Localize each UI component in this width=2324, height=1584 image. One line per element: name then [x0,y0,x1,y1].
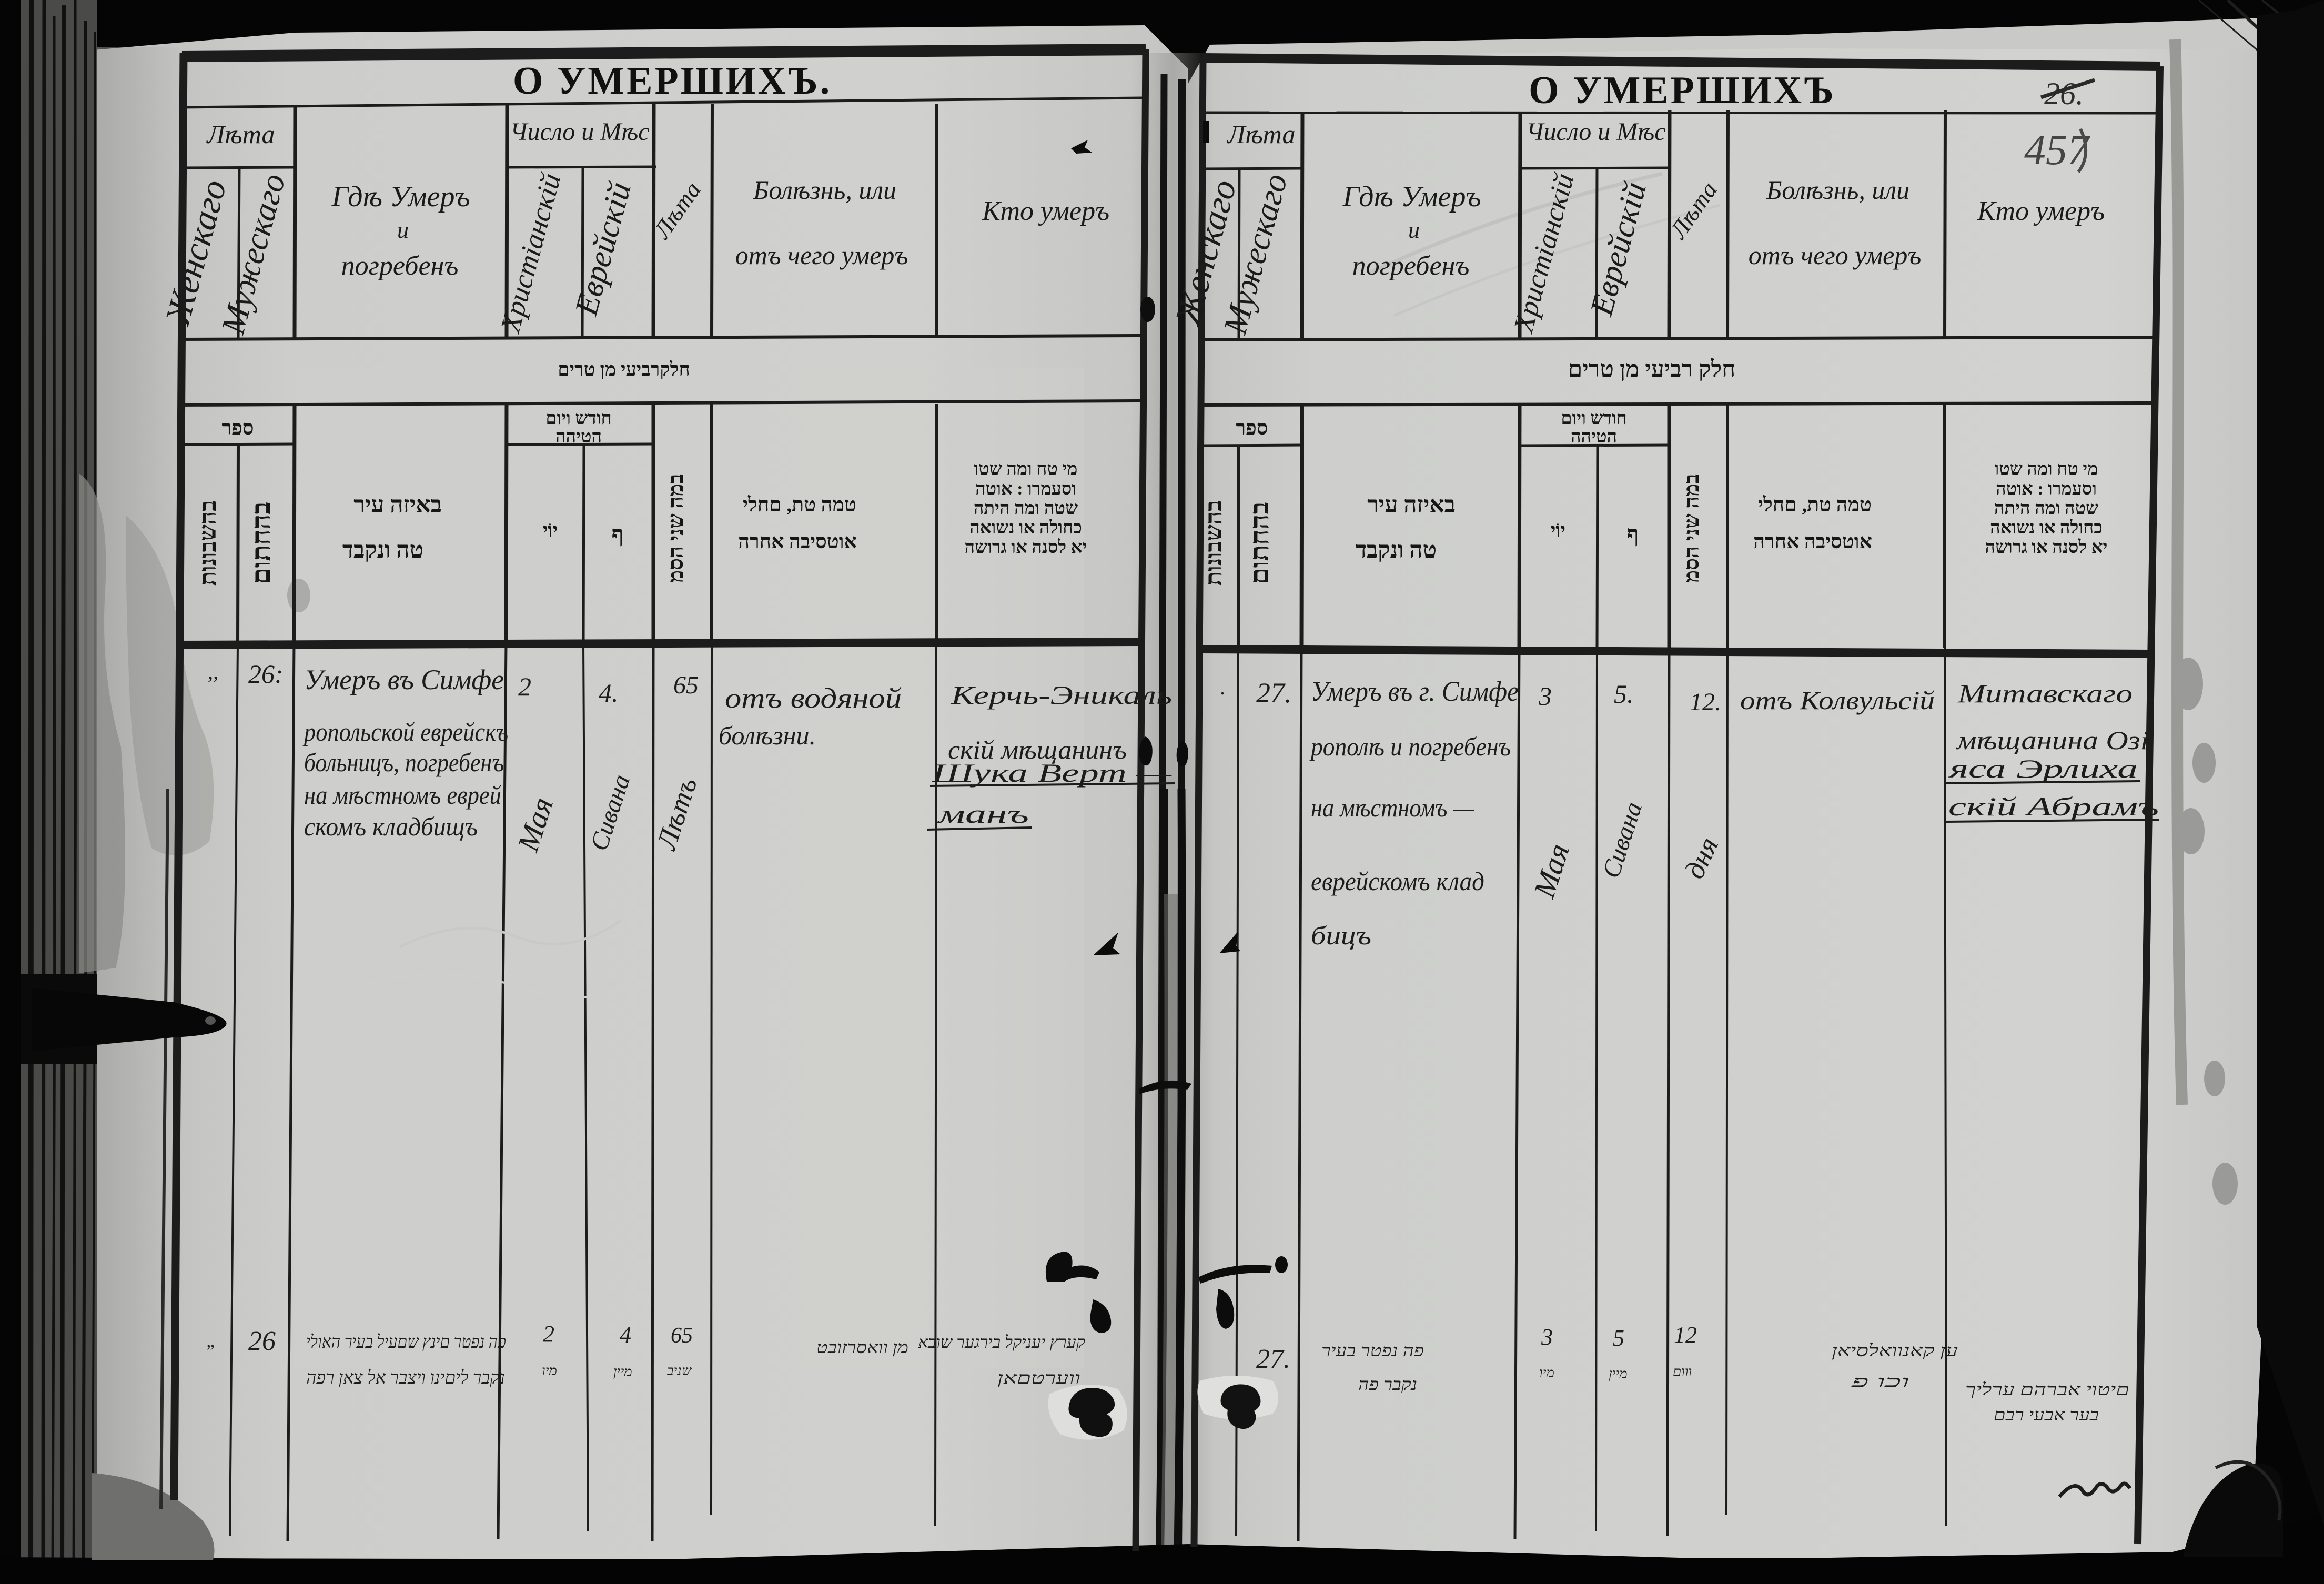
svg-text:еврейскомъ клад: еврейскомъ клад [1311,866,1484,896]
svg-text:חלק רביעי מן טרים: חלק רביעי מן טרים [1568,356,1735,382]
svg-text:Болѣзнь, или: Болѣзнь, или [1766,175,1909,205]
svg-text:3: 3 [1538,681,1552,711]
svg-text:погребенъ: погребенъ [1352,251,1470,281]
svg-text:Лѣта: Лѣта [1227,119,1296,149]
svg-text:бицъ: бицъ [1311,921,1371,950]
svg-text:скомъ кладбищъ: скомъ кладбищъ [304,812,478,841]
svg-text:больницъ, погребенъ: больницъ, погребенъ [304,748,504,777]
svg-text:מי טח ומה שטו: מי טח ומה שטו [1995,459,2098,479]
svg-text:отъ водяной: отъ водяной [725,682,902,714]
svg-text:וכו פ: וכו פ [1851,1373,1909,1390]
svg-text:נקבר פה: נקבר פה [1358,1375,1417,1394]
svg-text:ропольской еврейскъ: ропольской еврейскъ [302,717,508,746]
svg-text:יוֹי: יוֹי [543,520,558,541]
svg-text:12.: 12. [1690,688,1721,716]
svg-text:Митавскаго: Митавскаго [1957,679,2133,708]
svg-text:חלקרביעי מן טרים: חלקרביעי מן טרים [558,359,690,380]
svg-text:ווום: ווום [1673,1364,1692,1379]
svg-text:חודש ויום: חודש ויום [1561,409,1626,428]
svg-text:Гдѣ Умеръ: Гдѣ Умеръ [331,180,470,213]
svg-text:26: 26 [248,1326,276,1356]
svg-text:שניב: שניב [666,1363,692,1378]
svg-text:מיו: מיו [1539,1365,1554,1380]
svg-text:שטה ומה היתה: שטה ומה היתה [974,499,1078,518]
svg-text:3: 3 [1541,1324,1553,1350]
svg-text:ווערטםאן: ווערטםאן [997,1368,1080,1387]
svg-text:מן וואסרזובט: מן וואסרזובט [816,1338,908,1357]
svg-text:טה ונקבד: טה ונקבד [342,537,423,563]
svg-text:ף: ף [612,521,624,547]
svg-text:болѣзни.: болѣзни. [719,721,816,750]
svg-text:27.: 27. [1256,1344,1290,1374]
svg-text:ף: ף [1627,521,1639,547]
svg-text:5: 5 [1613,1325,1624,1351]
svg-text:манъ: манъ [937,799,1029,829]
svg-text:отъ чего умеръ: отъ чего умеръ [735,240,908,270]
svg-text:на мѣстномъ —: на мѣстномъ — [1311,793,1474,822]
svg-text:Число и Мѣс: Число и Мѣс [510,118,649,146]
svg-text:במה שני הסמ: במה שני הסמ [1680,473,1703,582]
svg-text:אוטסיבה אחרה: אוטסיבה אחרה [1753,531,1872,553]
svg-text:отъ чего умеръ: отъ чего умеръ [1749,240,1922,270]
svg-text:טמה טת, םחלי: טמה טת, םחלי [743,494,856,516]
svg-text:„: „ [206,1330,217,1351]
svg-text:וסעמרו : אוטה: וסעמרו : אוטה [1996,479,2097,499]
svg-text:הטיהה: הטיהה [1571,427,1617,447]
svg-text:и: и [1408,217,1420,243]
svg-text:ספר: ספר [222,417,254,439]
svg-text:26:: 26: [248,659,284,689]
svg-text:Керчь-Эникаль: Керчь-Эникаль [951,680,1172,710]
svg-text:и: и [397,217,409,243]
svg-text:נקבר ליםינו ויצבר אל צאן רפה: נקבר ליםינו ויצבר אל צאן רפה [306,1368,505,1388]
svg-text:яса Эрлиха: яса Эрлиха [1948,754,2138,783]
svg-text:отъ Колвульсій: отъ Колвульсій [1740,685,1935,715]
svg-text:2: 2 [543,1321,554,1347]
svg-text:скій Абрамъ: скій Абрамъ [1948,792,2159,821]
svg-text:םיטוי אברהם ערליך: םיטוי אברהם ערליך [1965,1380,2129,1399]
svg-text:ען קאנוואלסיאן: ען קאנוואלסיאן [1832,1341,1958,1360]
svg-text:погребенъ: погребенъ [341,251,459,281]
svg-text:65: 65 [673,671,699,699]
svg-text:קערץ יעניקל בירגער שובא: קערץ יעניקל בירגער שובא [918,1333,1085,1351]
svg-text:בער אבעי רבם: בער אבעי רבם [1994,1405,2099,1424]
svg-text:וסעמרו : אוטה: וסעמרו : אוטה [975,479,1076,499]
svg-text:טמה טת, םחלי: טמה טת, םחלי [1758,494,1872,516]
svg-text:ספר: ספר [1236,417,1268,439]
svg-text:на мѣстномъ еврей: на мѣстномъ еврей [304,780,501,810]
svg-text:מיו: מיו [542,1363,557,1378]
svg-text:מיין: מיין [1609,1366,1628,1381]
svg-text:כחולה או נשואה: כחולה או נשואה [969,518,1082,538]
svg-text:.: . [1220,675,1226,699]
svg-text:Болѣзнь, или: Болѣзнь, или [753,175,896,205]
svg-text:мѣщанина Озі: мѣщанина Озі [1956,725,2149,755]
svg-text:בהשבונות: בהשבונות [195,500,221,586]
svg-text:12: 12 [1674,1322,1697,1348]
svg-text:О УМЕРШИХЪ: О УМЕРШИХЪ [1529,69,1836,112]
svg-text:4: 4 [620,1322,631,1348]
svg-text:рополѣ и погребенъ: рополѣ и погребенъ [1309,732,1511,761]
svg-text:אוטסיבה אחרה: אוטסיבה אחרה [738,531,857,553]
svg-text:Лѣта: Лѣта [206,119,275,149]
svg-text:חודש ויום: חודש ויום [545,409,611,428]
svg-text:הטיהה: הטיהה [555,427,602,447]
svg-text:שטה ומה היתה: שטה ומה היתה [1994,499,2098,518]
svg-text:27.: 27. [1256,677,1292,709]
svg-text:באיזה עיר: באיזה עיר [353,492,442,518]
svg-text:יא לסנה או גרושה: יא לסנה או גרושה [965,538,1087,557]
svg-text:בהשבונות: בהשבונות [1201,500,1227,586]
svg-text:יא לסנה או גרושה: יא לסנה או גרושה [1985,538,2108,557]
svg-text:מיין: מיין [613,1364,632,1379]
svg-text:Число и Мѣс: Число и Мѣс [1526,118,1665,146]
svg-text:2: 2 [518,672,531,701]
svg-text:65: 65 [671,1324,693,1348]
svg-text:Кто умеръ: Кто умеръ [982,196,1109,226]
svg-text:О УМЕРШИХЪ.: О УМЕРШИХЪ. [513,59,832,103]
svg-text:כחולה או נשואה: כחולה או נשואה [1990,518,2103,538]
svg-text:Умеръ въ Симфе: Умеръ въ Симфе [304,664,504,695]
svg-text:5.: 5. [1614,679,1634,709]
svg-text:,,: ,, [208,660,218,683]
svg-text:4.: 4. [599,678,619,708]
svg-text:בהחתום: בהחתום [1245,502,1274,584]
svg-text:פה נפטר בעיר: פה נפטר בעיר [1321,1341,1424,1360]
svg-text:יוֹי: יוֹי [1551,520,1565,541]
svg-text:Умеръ въ г. Симфе: Умеръ въ г. Симфе [1311,675,1519,707]
svg-text:Кто умеръ: Кто умеръ [1977,196,2105,226]
svg-text:Гдѣ Умеръ: Гдѣ Умеръ [1342,180,1481,213]
svg-text:במה שני הסמ: במה שני הסמ [664,473,688,582]
svg-text:פה נפטר םינץ שםעיל בעיר האולי: פה נפטר םינץ שםעיל בעיר האולי [306,1333,506,1352]
svg-text:באיזה עיר: באיזה עיר [1367,492,1456,518]
svg-text:בהחתום: בהחתום [246,502,276,584]
svg-text:מי טח ומה שטו: מי טח ומה שטו [974,459,1078,479]
svg-text:טה ונקבד: טה ונקבד [1356,537,1437,563]
